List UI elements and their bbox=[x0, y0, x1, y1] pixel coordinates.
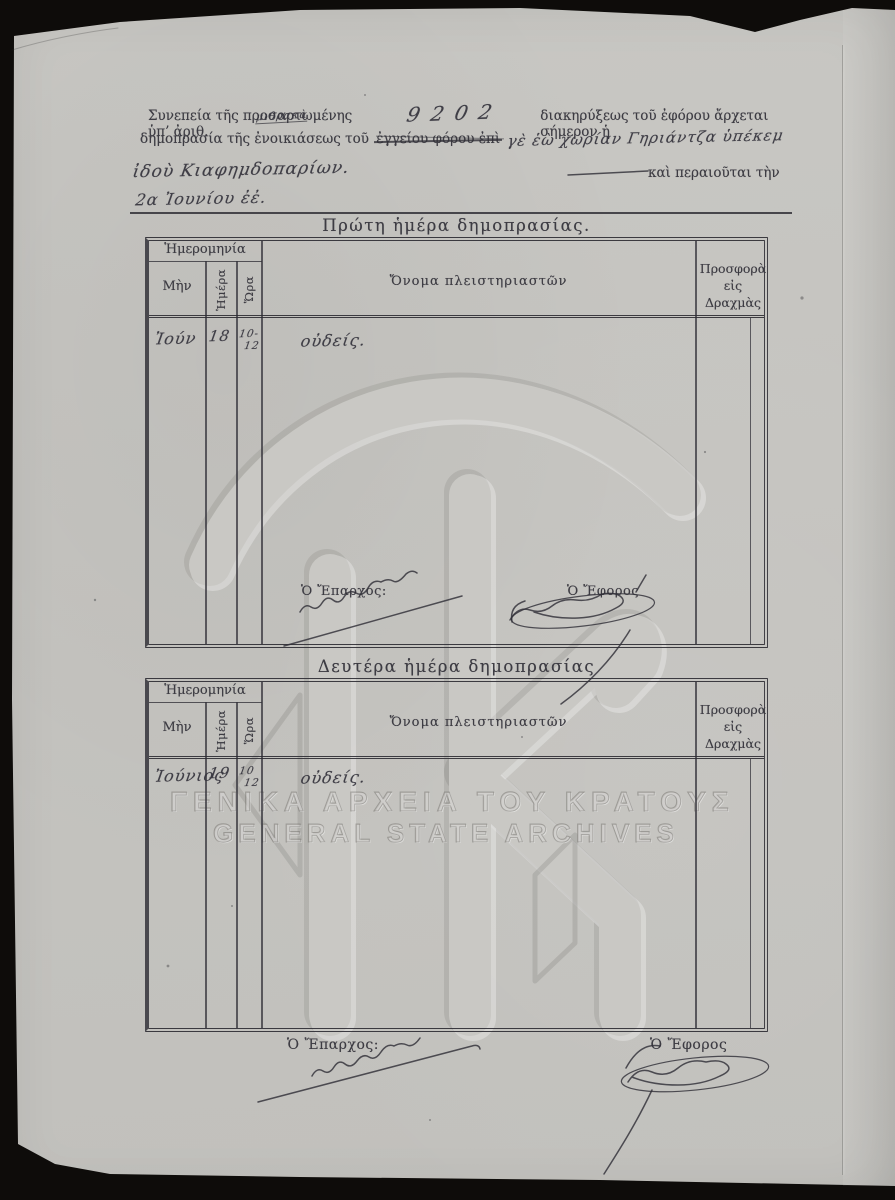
table1-header-day-label: Ἡμέρα bbox=[214, 269, 228, 311]
table1-entry-bidder: οὐδείς. bbox=[299, 330, 367, 350]
table2-title: Δευτέρα ἡμέρα δημοπρασίας bbox=[145, 657, 768, 676]
preamble-line4-handwriting: 2α Ἰουνίου ἐἐ. bbox=[134, 188, 268, 210]
auction-day2-table: Ἡμερομηνία Μὴν Ἡμέρα Ὥρα Ὄνομα πλειστηρι… bbox=[145, 678, 768, 1032]
table2-header-bidders: Ὄνομα πλειστηριαστῶν bbox=[262, 715, 695, 730]
table2-header-month: Μὴν bbox=[149, 720, 205, 735]
table1-header-bidders: Ὄνομα πλειστηριαστῶν bbox=[262, 274, 695, 289]
handwritten-annotation: μιθρακὰ bbox=[255, 109, 308, 125]
table2-header-day-label: Ἡμέρα bbox=[214, 710, 228, 752]
table1-ephor-label: Ὁ Ἔφορος bbox=[567, 584, 639, 599]
table1-entry-month: Ἰούν bbox=[153, 329, 198, 349]
table2-offer-subdivider bbox=[750, 759, 751, 1028]
table1-divider-month-day bbox=[205, 261, 207, 644]
table1-header-offer: Προσφορὰ εἰς Δραχμὰς bbox=[697, 261, 769, 312]
table2-header-hour-label: Ὥρα bbox=[242, 717, 256, 744]
table1-divider-day-hour bbox=[236, 261, 238, 644]
table1-header-hour: Ὥρα bbox=[237, 265, 261, 315]
table2-entry-bidder: οὐδείς. bbox=[299, 767, 367, 787]
table2-header-day: Ἡμέρα bbox=[206, 706, 236, 756]
handwritten-protocol-number: 9202 bbox=[373, 98, 537, 127]
table2-entry-day: 19 bbox=[208, 764, 232, 782]
table1-header-date: Ἡμερομηνία bbox=[149, 242, 261, 257]
table1-eparch-label: Ὁ Ἔπαρχος: bbox=[301, 584, 387, 599]
table1-header-month: Μὴν bbox=[149, 279, 205, 294]
footer-ephor-label: Ὁ Ἔφορος bbox=[650, 1037, 727, 1053]
table1-offer-subdivider bbox=[750, 318, 751, 644]
table2-divider-hour-names bbox=[261, 682, 263, 1028]
table1-divider-hour-names bbox=[261, 241, 263, 644]
fold-shading bbox=[843, 10, 895, 1186]
table2-header-date: Ἡμερομηνία bbox=[149, 683, 261, 698]
preamble-line2-handwriting: γὲ ἑὼ χωρίαν Γηριάντζα ὑπέκεμ bbox=[507, 126, 786, 150]
table1-entry-day: 18 bbox=[208, 327, 232, 345]
horizontal-rule bbox=[130, 212, 792, 214]
auction-day1-table: Ἡμερομηνία Μὴν Ἡμέρα Ὥρα Ὄνομα πλειστηρι… bbox=[145, 237, 768, 648]
table2-header-hour: Ὥρα bbox=[237, 706, 261, 756]
footer-eparch-label: Ὁ Ἔπαρχος: bbox=[287, 1037, 379, 1053]
table1-entry-hour-to: 12 bbox=[243, 340, 260, 352]
table1-header-hour-label: Ὥρα bbox=[242, 276, 256, 303]
table1-entry-hour: 10- 12 bbox=[239, 329, 259, 352]
table1-header-rule bbox=[149, 315, 764, 318]
table2-entry-hour: 10 12 bbox=[239, 766, 259, 789]
table1-title: Πρώτη ἡμέρα δημοπρασίας. bbox=[145, 216, 768, 235]
preamble-line2: δημοπρασία τῆς ἐνοικιάσεως τοῦ ἐγγείου φ… bbox=[140, 129, 795, 147]
table2-entry-hour-to: 12 bbox=[243, 777, 260, 789]
table1-header-day: Ἡμέρα bbox=[206, 265, 236, 315]
preamble-line2-printed: δημοπρασία τῆς ἐνοικιάσεως τοῦ bbox=[140, 131, 369, 147]
preamble-struck-text: ἐγγείου φόρου ἐπὶ bbox=[376, 131, 500, 147]
scanned-document: ΓΕΝΙΚΑ ΑΡΧΕΙΑ ΤΟΥ ΚΡΑΤΟΥΣ GENERAL STATE … bbox=[0, 0, 895, 1200]
table2-header-rule bbox=[149, 756, 764, 759]
table2-header-offer: Προσφορὰ εἰς Δραχμὰς bbox=[697, 702, 769, 753]
preamble-line3-printed: καὶ περαιοῦται τὴν bbox=[648, 165, 780, 181]
